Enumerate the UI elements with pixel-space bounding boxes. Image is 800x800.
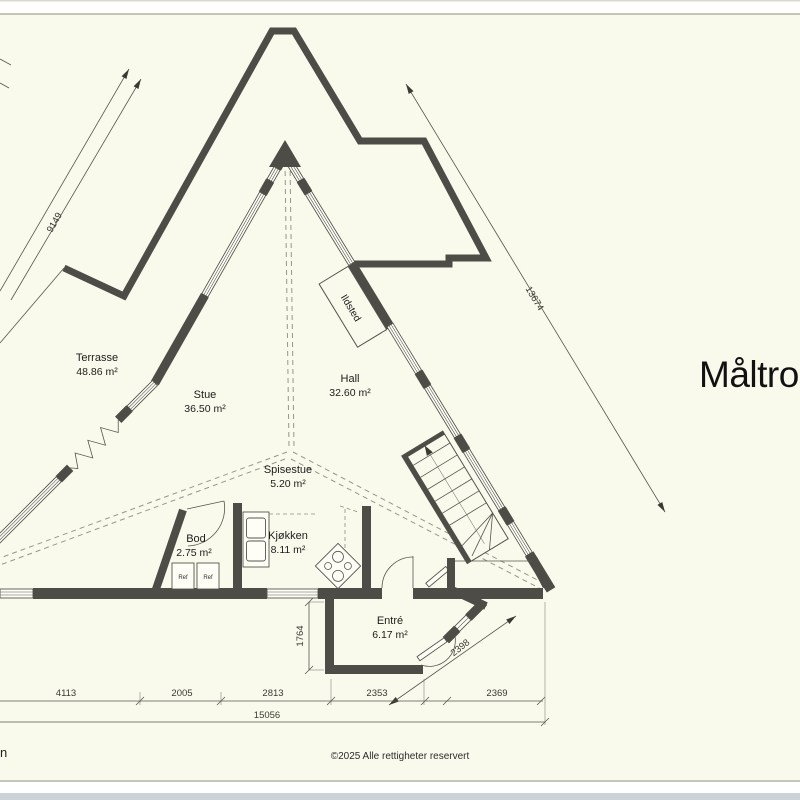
top-rule: [0, 13, 800, 15]
room-bod-area: 2.75 m²: [176, 547, 212, 559]
room-entre-area: 6.17 m²: [372, 629, 408, 641]
room-kjokken-area: 8.11 m²: [271, 544, 306, 556]
plan-title: Måltros: [699, 354, 800, 395]
room-stue-name: Stue: [194, 389, 217, 401]
room-stue-area: 36.50 m²: [184, 403, 226, 415]
room-bod-name: Bod: [186, 533, 206, 545]
dim-bottom-5: 2369: [486, 688, 507, 699]
dim-bottom-1: 4113: [56, 688, 76, 699]
room-entre-name: Entré: [377, 615, 403, 627]
dim-bottom-total: 15056: [254, 710, 280, 721]
room-hall-area: 32.60 m²: [329, 387, 371, 399]
room-terrasse-area: 48.86 m²: [76, 366, 118, 378]
dim-bottom-2: 2005: [171, 688, 192, 699]
kitchen-right-wall: [362, 506, 371, 590]
room-terrasse-name: Terrasse: [76, 352, 118, 364]
room-spisestue-area: 5.20 m²: [270, 478, 306, 490]
room-spisestue-name: Spisestue: [264, 464, 312, 476]
page-bottom-edge: [0, 793, 800, 800]
page-top-edge: [0, 0, 800, 2]
fridge-1-label: Ref: [178, 575, 188, 581]
cut-text-left: n: [0, 745, 7, 760]
copyright: ©2025 Alle rettigheter reservert: [331, 751, 470, 762]
room-kjokken-name: Kjøkken: [268, 530, 308, 542]
bottom-rule: [0, 780, 800, 782]
dim-bottom-3: 2813: [262, 688, 283, 699]
fridge-2-label: Ref: [203, 575, 213, 581]
dim-entry-depth-value: 1764: [295, 625, 306, 646]
floor-plan-canvas: Ildsted: [0, 0, 800, 800]
sink-basin-1: [247, 518, 266, 538]
dim-bottom-4: 2353: [366, 688, 387, 699]
room-hall-name: Hall: [341, 373, 360, 385]
sink-basin-2: [247, 541, 266, 561]
